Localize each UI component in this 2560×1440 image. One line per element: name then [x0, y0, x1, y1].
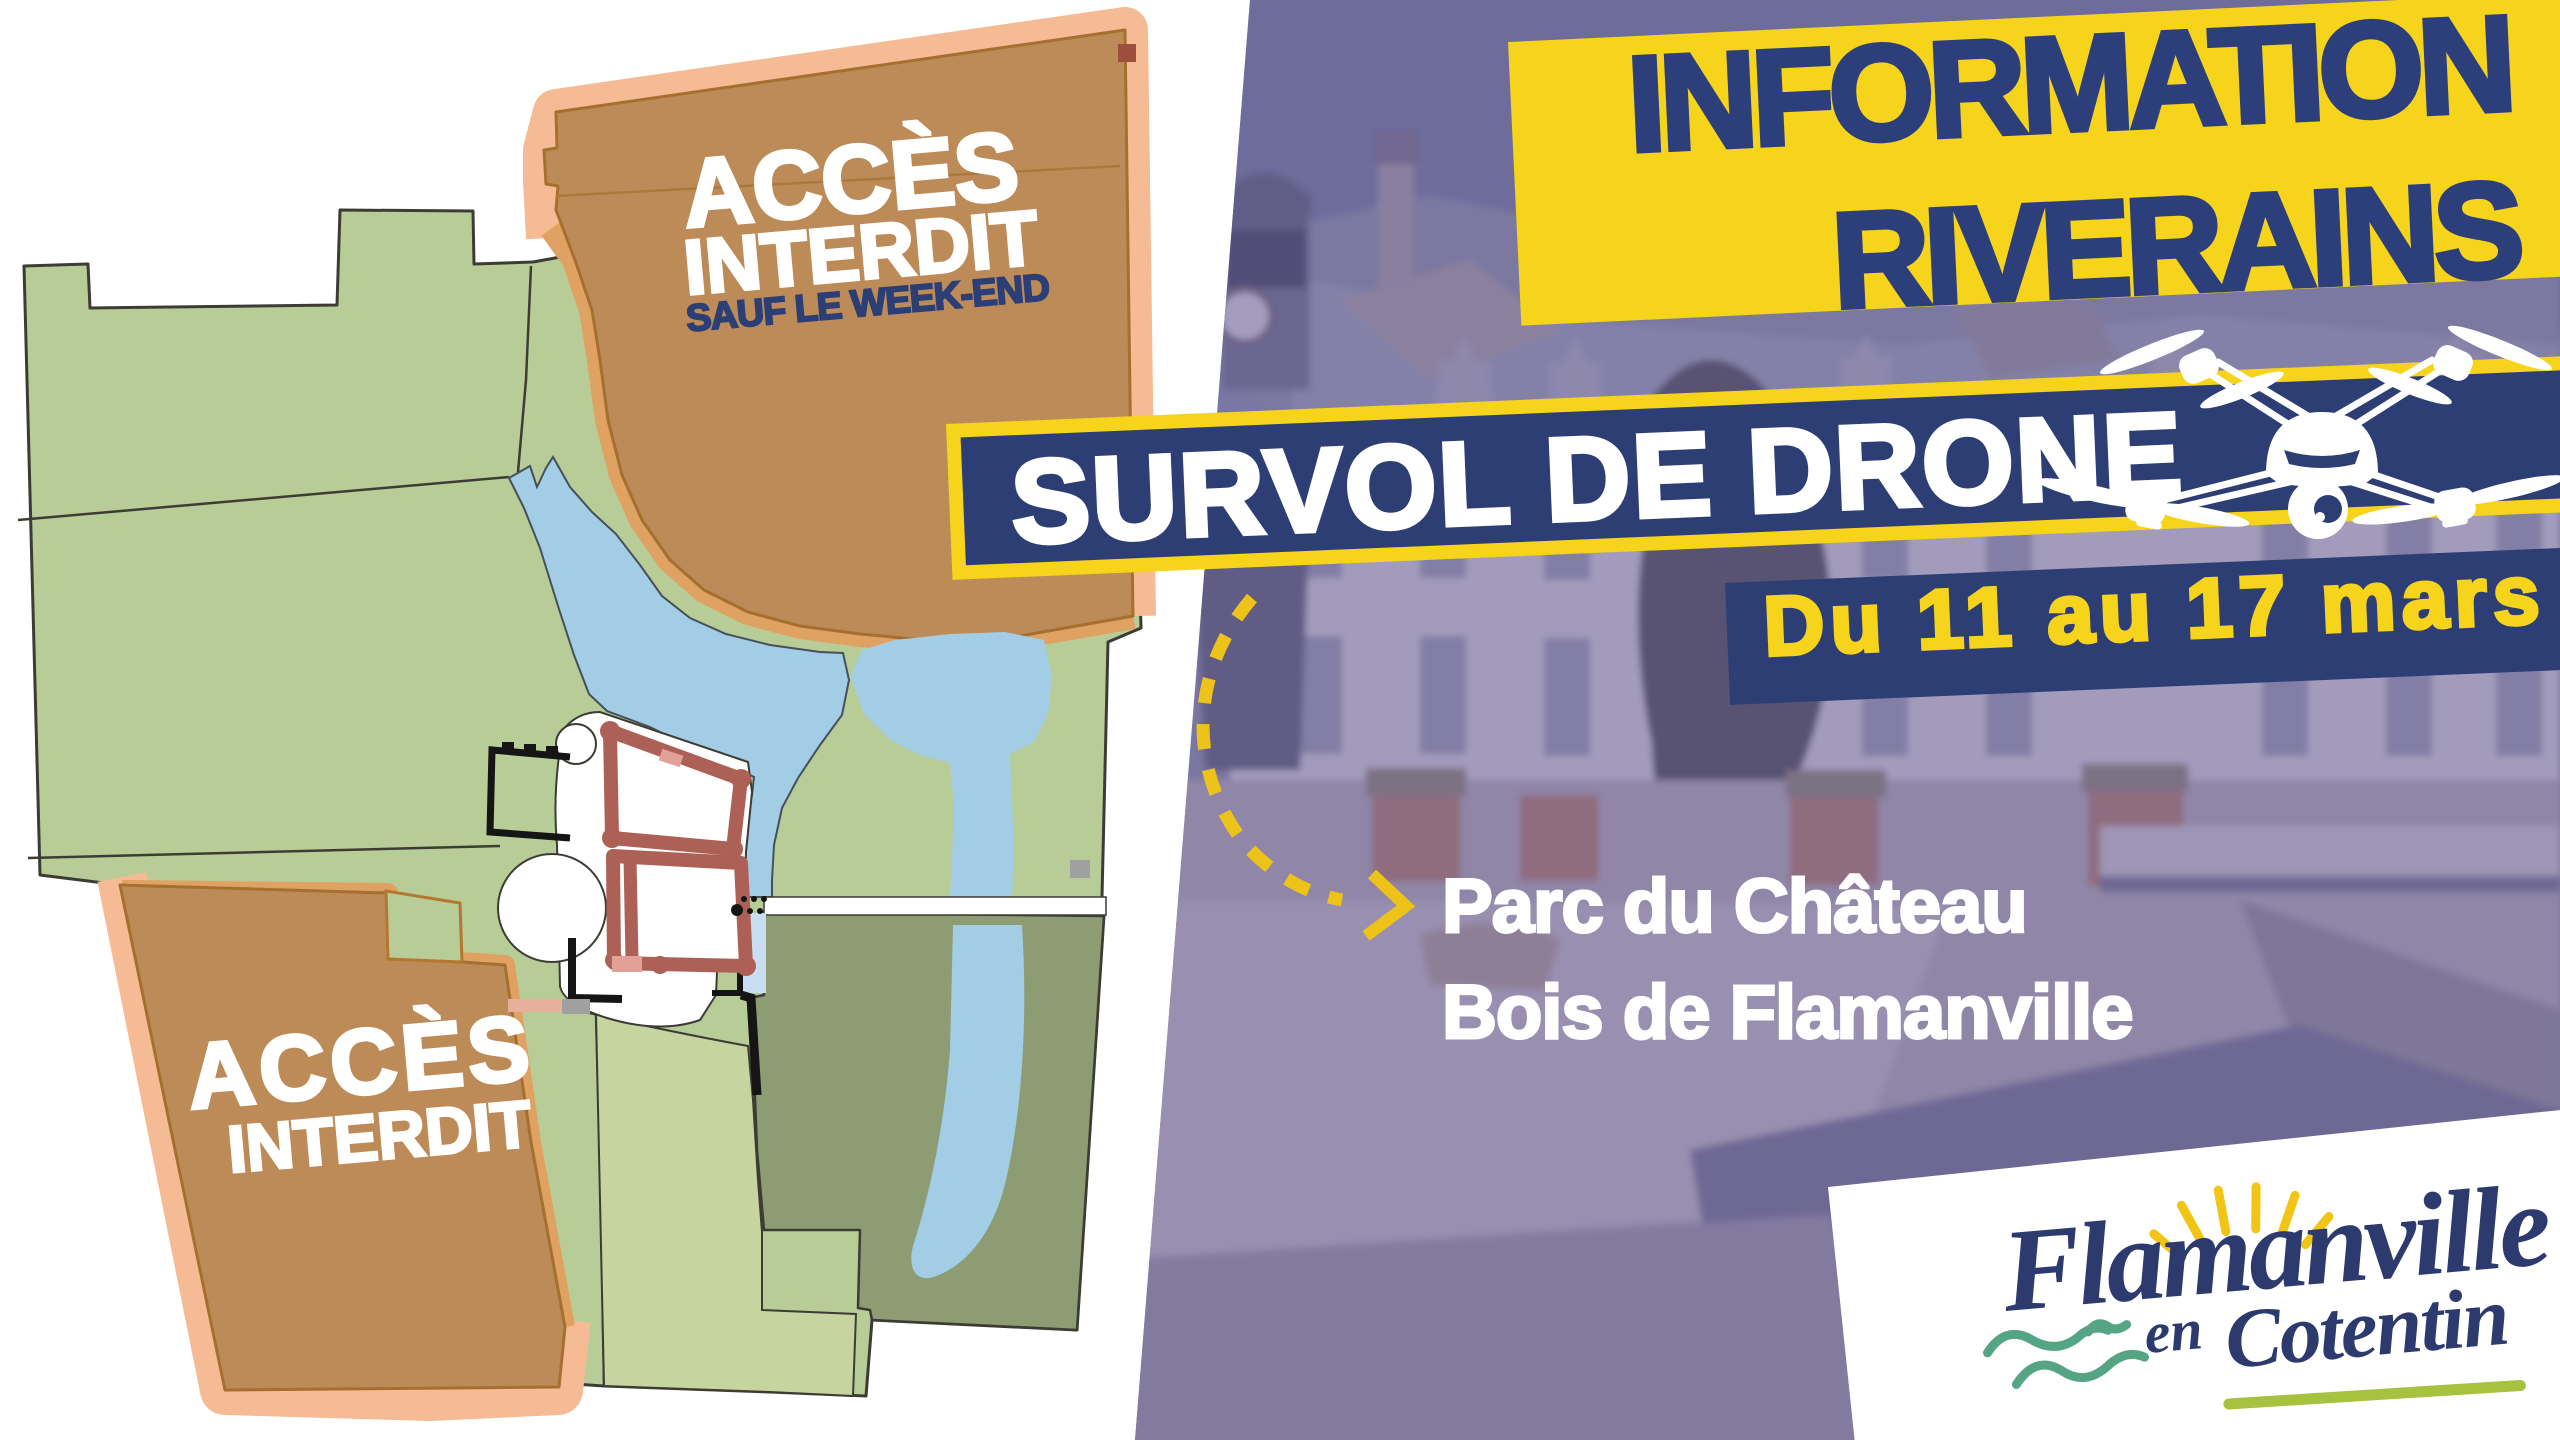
- svg-text:RIVERAINS: RIVERAINS: [1829, 153, 2523, 337]
- svg-text:en: en: [2142, 1296, 2205, 1366]
- svg-text:Parc du Château: Parc du Château: [1442, 864, 2027, 949]
- svg-text:Bois de Flamanville: Bois de Flamanville: [1442, 970, 2133, 1055]
